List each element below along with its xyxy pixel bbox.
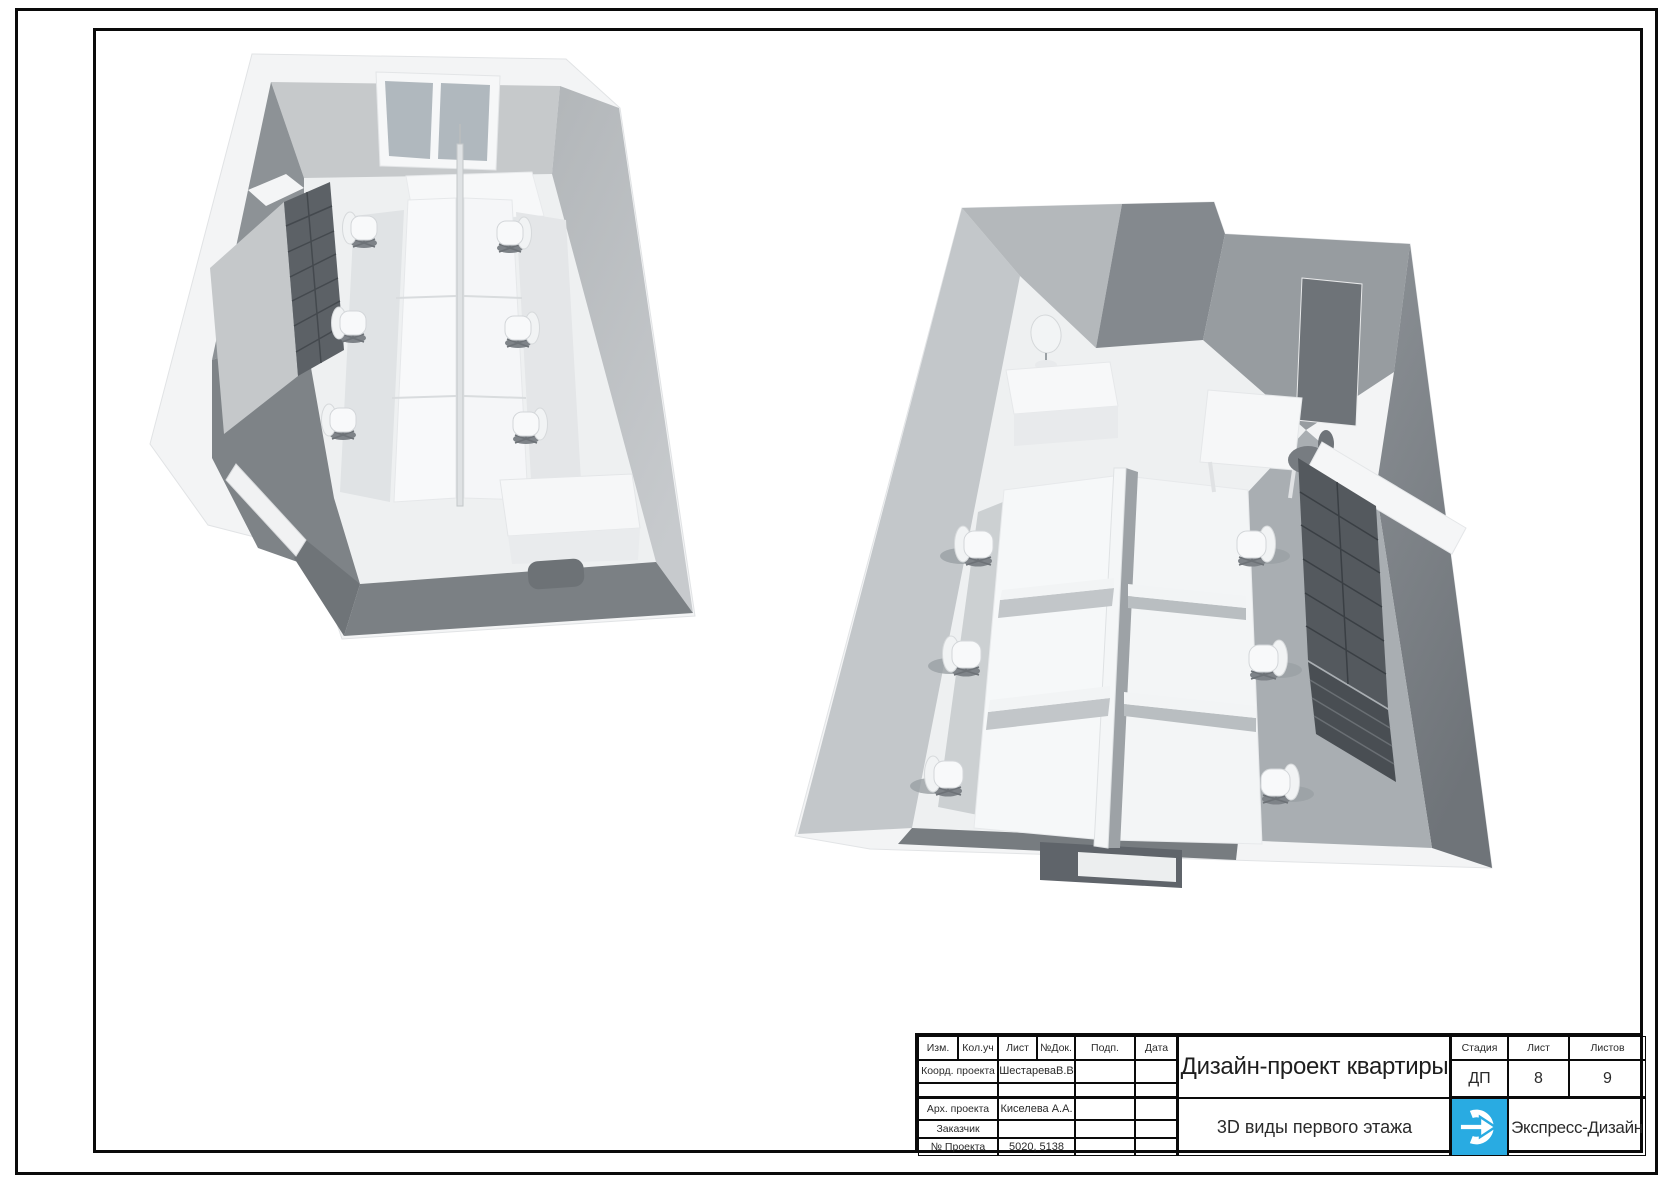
title-block: Изм. Кол.уч Лист №Док. Подп. Дата Коорд.…	[915, 1033, 1643, 1153]
tb-row-client-value	[998, 1120, 1075, 1138]
tb-row-projnum-date	[1135, 1138, 1178, 1156]
company-logo	[1451, 1098, 1508, 1156]
tb-row-arch-value: Киселева А.А.	[998, 1098, 1075, 1120]
tb-header-podp: Подп.	[1075, 1036, 1135, 1060]
glass-divider	[457, 144, 463, 506]
tb-row-projnum-value: 5020, 5138	[998, 1138, 1075, 1156]
tb-row-arch-sign	[1075, 1098, 1135, 1120]
tb-row-arch-label: Арх. проекта	[918, 1098, 998, 1120]
tb-row-coord-value: ШестареваВ.В	[998, 1060, 1075, 1083]
workstation-desks	[974, 468, 1262, 848]
tb-row-coord-sign	[1075, 1060, 1135, 1083]
tb-header-izm: Изм.	[918, 1036, 958, 1060]
tb-stage-label: Стадия	[1451, 1036, 1508, 1060]
tb-header-ndok: №Док.	[1037, 1036, 1075, 1060]
bottom-doorway	[1040, 842, 1182, 888]
express-design-logo-icon	[1452, 1099, 1507, 1155]
tb-sheet-value: 8	[1508, 1060, 1569, 1098]
tb-row-projnum-label: № Проекта	[918, 1138, 998, 1156]
company-name: Экспресс-Дизайн	[1508, 1098, 1646, 1156]
window	[376, 72, 500, 170]
tb-total-value: 9	[1569, 1060, 1646, 1098]
tb-row-arch-date	[1135, 1098, 1178, 1120]
tb-thick-line	[918, 1096, 1178, 1099]
tb-header-list: Лист	[998, 1036, 1037, 1060]
3d-view-meeting-room	[108, 28, 708, 643]
tb-thick-line	[1451, 1096, 1646, 1099]
tb-header-data: Дата	[1135, 1036, 1178, 1060]
tb-total-label: Листов	[1569, 1036, 1646, 1060]
tb-header-koluch: Кол.уч	[958, 1036, 998, 1060]
tb-row-projnum-sign	[1075, 1138, 1135, 1156]
3d-view-office-room	[778, 192, 1502, 892]
tb-row-client-sign	[1075, 1120, 1135, 1138]
project-title: Дизайн-проект квартиры	[1178, 1036, 1451, 1098]
sheet-title: 3D виды первого этажа	[1178, 1098, 1451, 1156]
stool	[527, 558, 585, 590]
tb-row-client-date	[1135, 1120, 1178, 1138]
tb-thick-line	[1176, 1036, 1179, 1156]
tb-stage-value: ДП	[1451, 1060, 1508, 1098]
tb-sheet-label: Лист	[1508, 1036, 1569, 1060]
door	[1296, 278, 1362, 426]
tb-row-client-label: Заказчик	[918, 1120, 998, 1138]
drawing-sheet: Изм. Кол.уч Лист №Док. Подп. Дата Коорд.…	[0, 0, 1680, 1188]
tb-row-coord-date	[1135, 1060, 1178, 1083]
tb-row-coord-label: Коорд. проекта	[918, 1060, 998, 1083]
